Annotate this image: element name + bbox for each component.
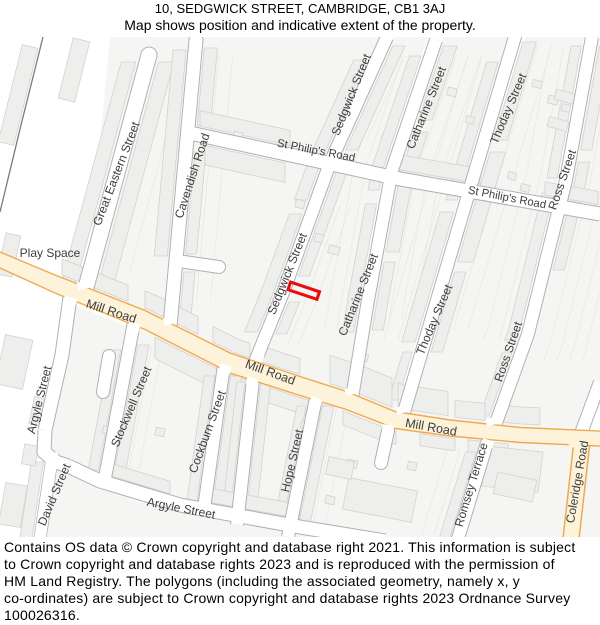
svg-text:Play Space: Play Space <box>20 246 81 260</box>
